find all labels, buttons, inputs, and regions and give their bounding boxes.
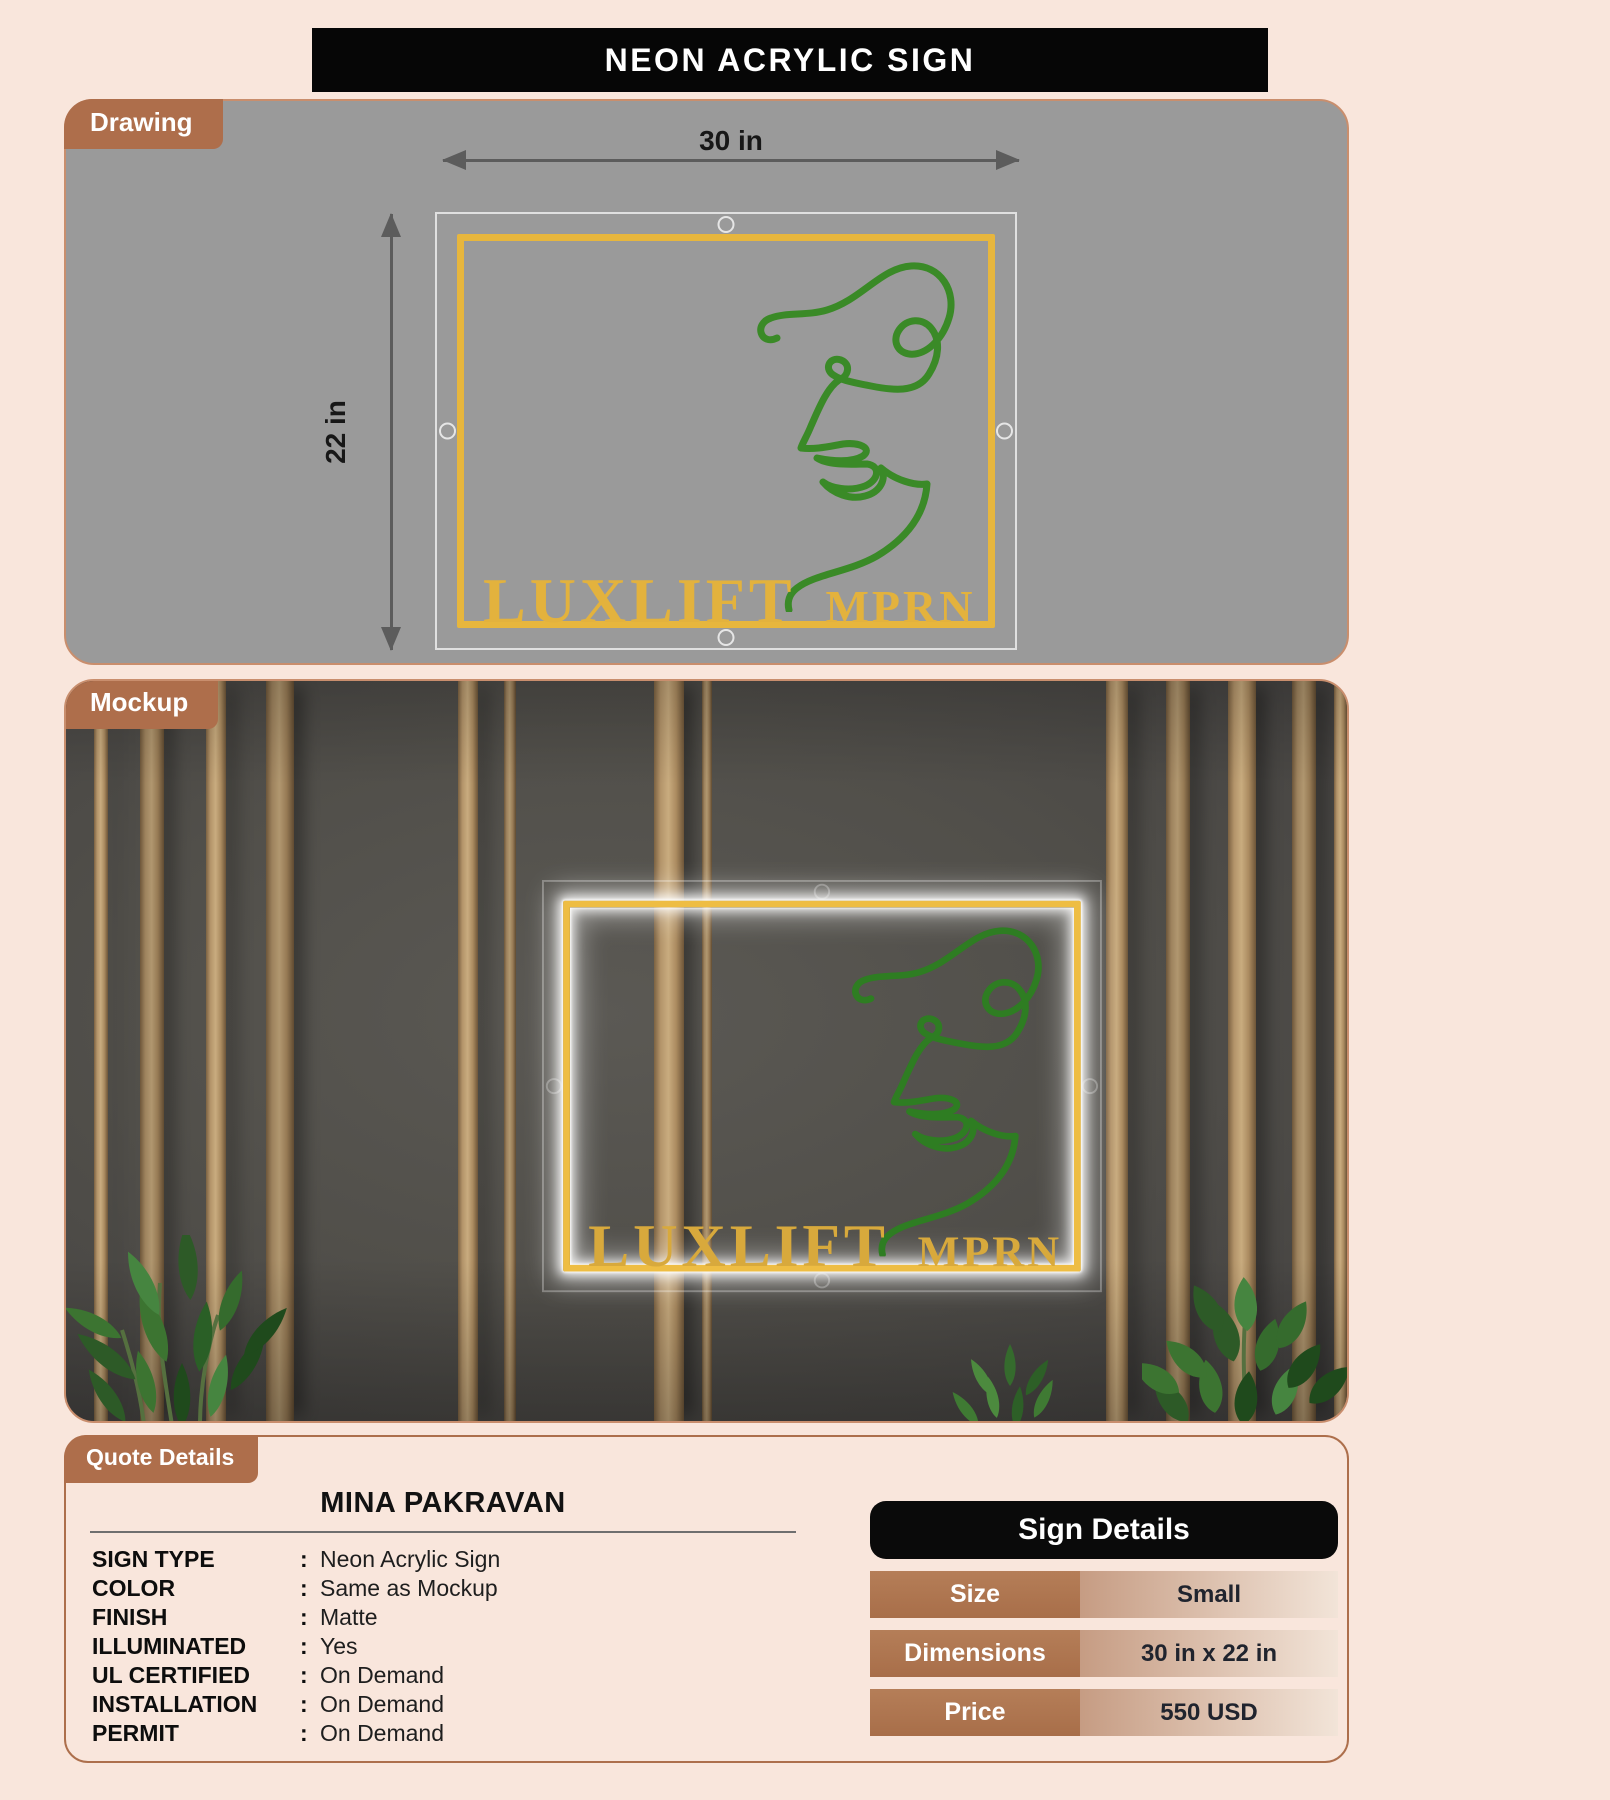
sign-details-row-label: Dimensions (870, 1630, 1080, 1677)
divider (90, 1531, 796, 1533)
sign-mockup: LUXLIFTMPRN (542, 880, 1102, 1292)
sign-details-row-value: 30 in x 22 in (1080, 1630, 1338, 1677)
height-dimension-arrow: 22 in (390, 214, 393, 650)
quote-row-value: On Demand (320, 1661, 500, 1690)
customer-name: MINA PAKRAVAN (90, 1487, 796, 1520)
wall-slat (504, 681, 516, 1421)
quote-row: COLOR : Same as Mockup (92, 1574, 500, 1603)
sign-details-table: Sign Details Size Small Dimensions 30 in… (870, 1501, 1338, 1736)
plant-right-icon (1142, 1267, 1349, 1423)
face-line-art (731, 252, 971, 612)
quote-row: FINISH : Matte (92, 1603, 500, 1632)
sign-details-row: Dimensions 30 in x 22 in (870, 1630, 1338, 1677)
face-line-art (827, 918, 1058, 1257)
quote-details-tab: Quote Details (64, 1435, 258, 1483)
mockup-tab: Mockup (64, 679, 218, 729)
drawing-panel: Drawing 30 in 22 in LUXLIFTMPRN (64, 99, 1349, 665)
brand-text: LUXLIFT (483, 565, 796, 636)
sign-wordmark: LUXLIFTMPRN (483, 564, 975, 638)
colon: : (300, 1690, 320, 1719)
page-title-banner: NEON ACRYLIC SIGN (312, 28, 1268, 92)
mockup-tab-label: Mockup (90, 687, 188, 718)
colon: : (300, 1603, 320, 1632)
mounting-hole (546, 1078, 562, 1094)
width-dimension-arrow (443, 159, 1019, 162)
plant-left-icon (64, 1235, 360, 1423)
quote-row-value: Same as Mockup (320, 1574, 500, 1603)
width-dimension: 30 in (443, 125, 1019, 162)
quote-details-panel: Quote Details MINA PAKRAVAN SIGN TYPE : … (64, 1435, 1349, 1763)
quote-row: SIGN TYPE : Neon Acrylic Sign (92, 1545, 500, 1574)
wall-slat (458, 681, 478, 1421)
sign-details-header: Sign Details (870, 1501, 1338, 1559)
sign-details-row-label: Size (870, 1571, 1080, 1618)
sign-details-row-value: Small (1080, 1571, 1338, 1618)
sign-drawing: LUXLIFTMPRN (435, 212, 1017, 650)
quote-row-value: Matte (320, 1603, 500, 1632)
quote-row: ILLUMINATED : Yes (92, 1632, 500, 1661)
quote-row-label: COLOR (92, 1574, 300, 1603)
mounting-hole (996, 423, 1013, 440)
sign-details-row-value: 550 USD (1080, 1689, 1338, 1736)
quote-row: UL CERTIFIED : On Demand (92, 1661, 500, 1690)
quote-row-label: SIGN TYPE (92, 1545, 300, 1574)
drawing-tab-label: Drawing (90, 107, 193, 138)
sub-brand-text: MPRN (918, 1227, 1062, 1275)
drawing-tab: Drawing (64, 99, 223, 149)
brand-text: LUXLIFT (588, 1212, 889, 1279)
colon: : (300, 1545, 320, 1574)
sign-details-row: Price 550 USD (870, 1689, 1338, 1736)
mockup-panel: Mockup LUXLIFTMPRN (64, 679, 1349, 1423)
quote-row-label: ILLUMINATED (92, 1632, 300, 1661)
mounting-hole (1082, 1078, 1098, 1094)
quote-row-value: On Demand (320, 1690, 500, 1719)
quote-rows: SIGN TYPE : Neon Acrylic Sign COLOR : Sa… (92, 1545, 500, 1748)
wall-slat (1106, 681, 1128, 1421)
sub-brand-text: MPRN (826, 581, 976, 632)
sign-details-row: Size Small (870, 1571, 1338, 1618)
sign-wordmark: LUXLIFTMPRN (588, 1211, 1062, 1281)
mounting-hole (439, 423, 456, 440)
colon: : (300, 1632, 320, 1661)
page-title: NEON ACRYLIC SIGN (605, 42, 976, 79)
quote-row-label: INSTALLATION (92, 1690, 300, 1719)
sign-details-row-label: Price (870, 1689, 1080, 1736)
quote-details-tab-label: Quote Details (86, 1444, 234, 1471)
quote-row-value: On Demand (320, 1719, 500, 1748)
quote-row-label: PERMIT (92, 1719, 300, 1748)
quote-row: PERMIT : On Demand (92, 1719, 500, 1748)
height-dimension-label: 22 in (320, 400, 352, 464)
width-dimension-label: 30 in (443, 125, 1019, 153)
quote-row-label: FINISH (92, 1603, 300, 1632)
quote-row: INSTALLATION : On Demand (92, 1690, 500, 1719)
mounting-hole (718, 216, 735, 233)
mounting-hole (814, 884, 830, 900)
quote-row-value: Yes (320, 1632, 500, 1661)
quote-row-value: Neon Acrylic Sign (320, 1545, 500, 1574)
colon: : (300, 1719, 320, 1748)
colon: : (300, 1661, 320, 1690)
plant-center-icon (932, 1330, 1102, 1423)
colon: : (300, 1574, 320, 1603)
quote-row-label: UL CERTIFIED (92, 1661, 300, 1690)
